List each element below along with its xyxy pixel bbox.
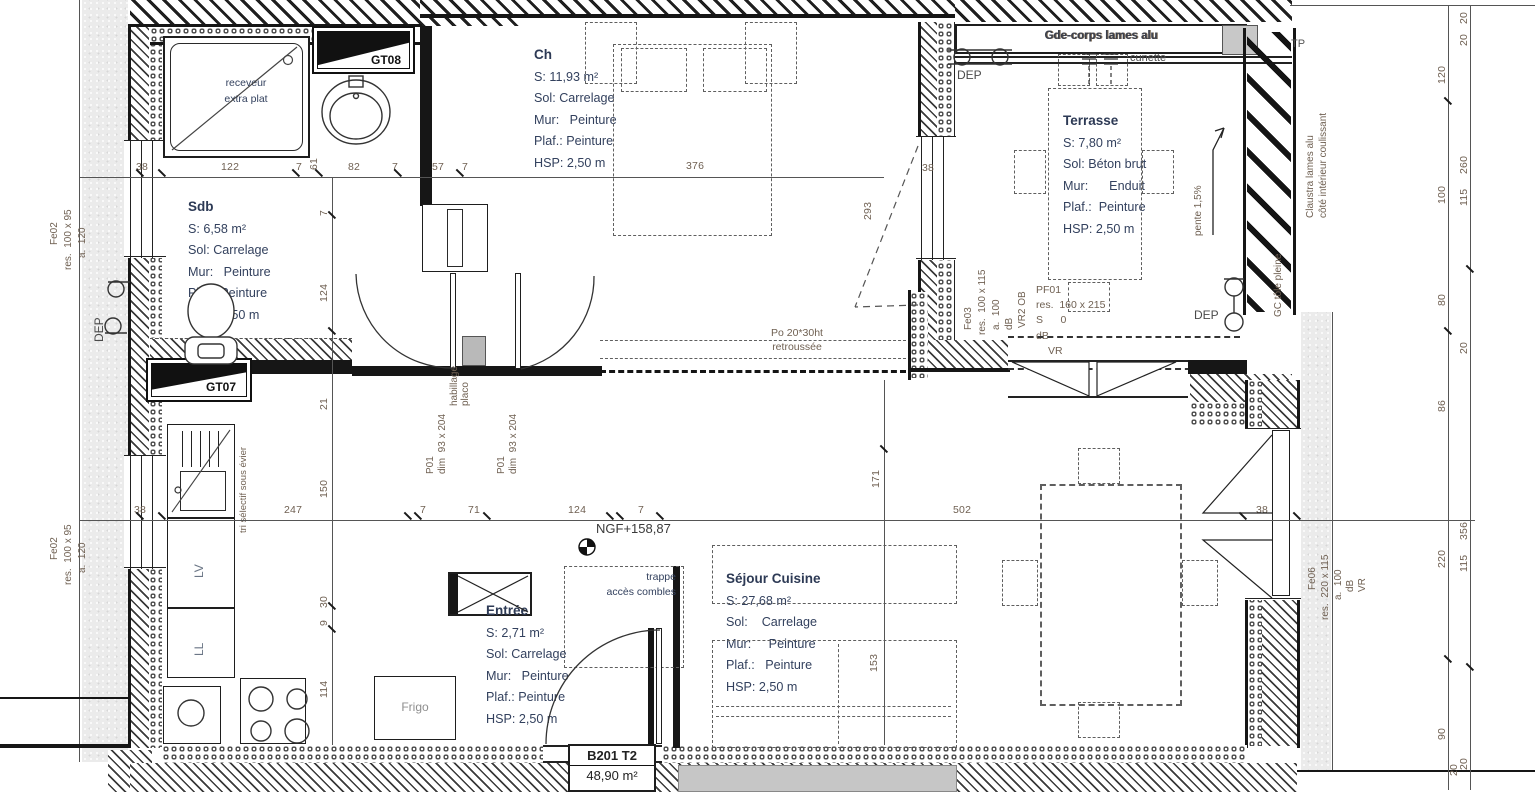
sink-faucet-icon [175,487,181,493]
door-swing-icon [546,630,660,744]
dep-pipes-icon [1224,278,1244,331]
symbol-layer [0,0,1535,800]
level-marker-icon [579,539,595,555]
window-swing-icon [855,146,918,307]
toilet-icon [185,284,237,364]
door-swing-icon [356,274,455,368]
shower-drain-icon [284,56,293,65]
slope-arrow-icon [1213,128,1224,235]
cunette-drain-icon [1082,54,1118,86]
dep-pipes-icon [105,281,130,334]
cooktop-burners-icon [249,687,309,743]
washbasin-icon [322,76,390,144]
sliding-panel-icon [1097,362,1176,396]
door-swing-icon [521,276,594,369]
floor-plan: GT08 receveurextra plat Sdb S: 6,58 m² S… [0,0,1535,800]
sink-diagonal-icon [172,430,230,512]
corner-sink-icon [178,700,204,726]
window-opening-icon [1203,540,1272,598]
window-opening-icon [1203,435,1272,513]
sliding-panel-icon [1012,362,1089,396]
electrical-cross-icon [458,576,528,612]
dep-pipes-icon [948,49,1012,65]
shower-diagonal-icon [172,47,297,150]
